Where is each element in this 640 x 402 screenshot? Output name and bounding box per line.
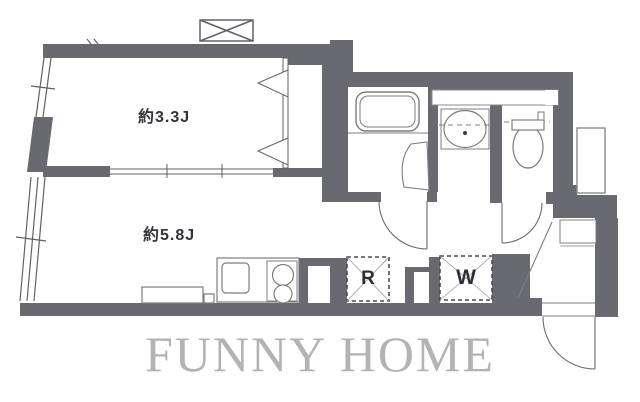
refrigerator-spot-label: R (347, 257, 389, 301)
shoe-cabinet (560, 220, 596, 243)
kitchen-sink-icon (222, 263, 249, 293)
sliding-door (110, 164, 273, 178)
washer-spot-label: W (440, 256, 492, 300)
crossed-box-marker (200, 20, 253, 41)
room-33j-label: 約3.3J (138, 103, 190, 127)
floor-plan-canvas: FUNNY HOME (0, 0, 640, 402)
floor-plan-drawing (0, 0, 640, 402)
wet-area-counter (432, 90, 558, 105)
washbasin-icon (439, 109, 489, 149)
pipe-space-box (577, 128, 605, 193)
kitchen-unit (217, 258, 299, 303)
stove-burner-icon (273, 265, 294, 286)
wall-niches (432, 90, 558, 105)
bathtub-icon (348, 92, 428, 133)
closet-bifold-doors (258, 58, 288, 168)
toilet-icon (504, 112, 550, 168)
stove-burner-icon (274, 285, 292, 303)
wall-notch (545, 90, 558, 105)
bath-door-panel (402, 142, 429, 190)
low-counter (142, 287, 214, 303)
room-58j-label: 約5.8J (143, 221, 195, 245)
